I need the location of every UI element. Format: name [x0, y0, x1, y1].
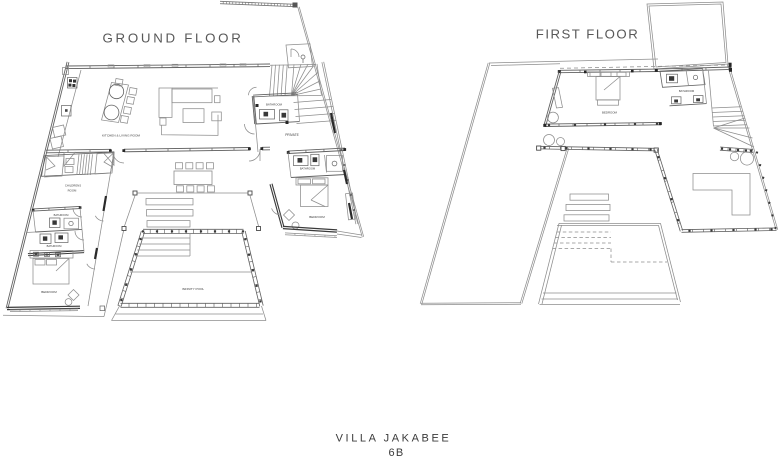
- svg-text:6B: 6B: [388, 447, 404, 458]
- svg-text:CHILDRENS: CHILDRENS: [65, 184, 81, 188]
- svg-text:BATHROOM: BATHROOM: [300, 166, 316, 170]
- svg-text:BATHROOM: BATHROOM: [266, 102, 283, 106]
- svg-text:BATHROOM: BATHROOM: [47, 244, 62, 248]
- svg-text:PRIVATE: PRIVATE: [285, 133, 299, 137]
- svg-text:BEDROOM: BEDROOM: [41, 290, 57, 294]
- svg-text:FIRST FLOOR: FIRST FLOOR: [536, 27, 639, 42]
- svg-text:KITCHEN & LIVING ROOM: KITCHEN & LIVING ROOM: [102, 133, 140, 137]
- svg-text:BEDROOM: BEDROOM: [309, 215, 325, 219]
- svg-text:BEDROOM: BEDROOM: [602, 111, 618, 115]
- svg-text:VILLA JAKABEE: VILLA JAKABEE: [336, 433, 452, 445]
- svg-text:INFINITY POOL: INFINITY POOL: [182, 287, 205, 291]
- svg-text:BATHROOM: BATHROOM: [679, 89, 695, 93]
- svg-text:BATHROOM: BATHROOM: [54, 213, 69, 217]
- svg-text:ROOM: ROOM: [68, 189, 77, 193]
- svg-text:GROUND FLOOR: GROUND FLOOR: [103, 30, 244, 45]
